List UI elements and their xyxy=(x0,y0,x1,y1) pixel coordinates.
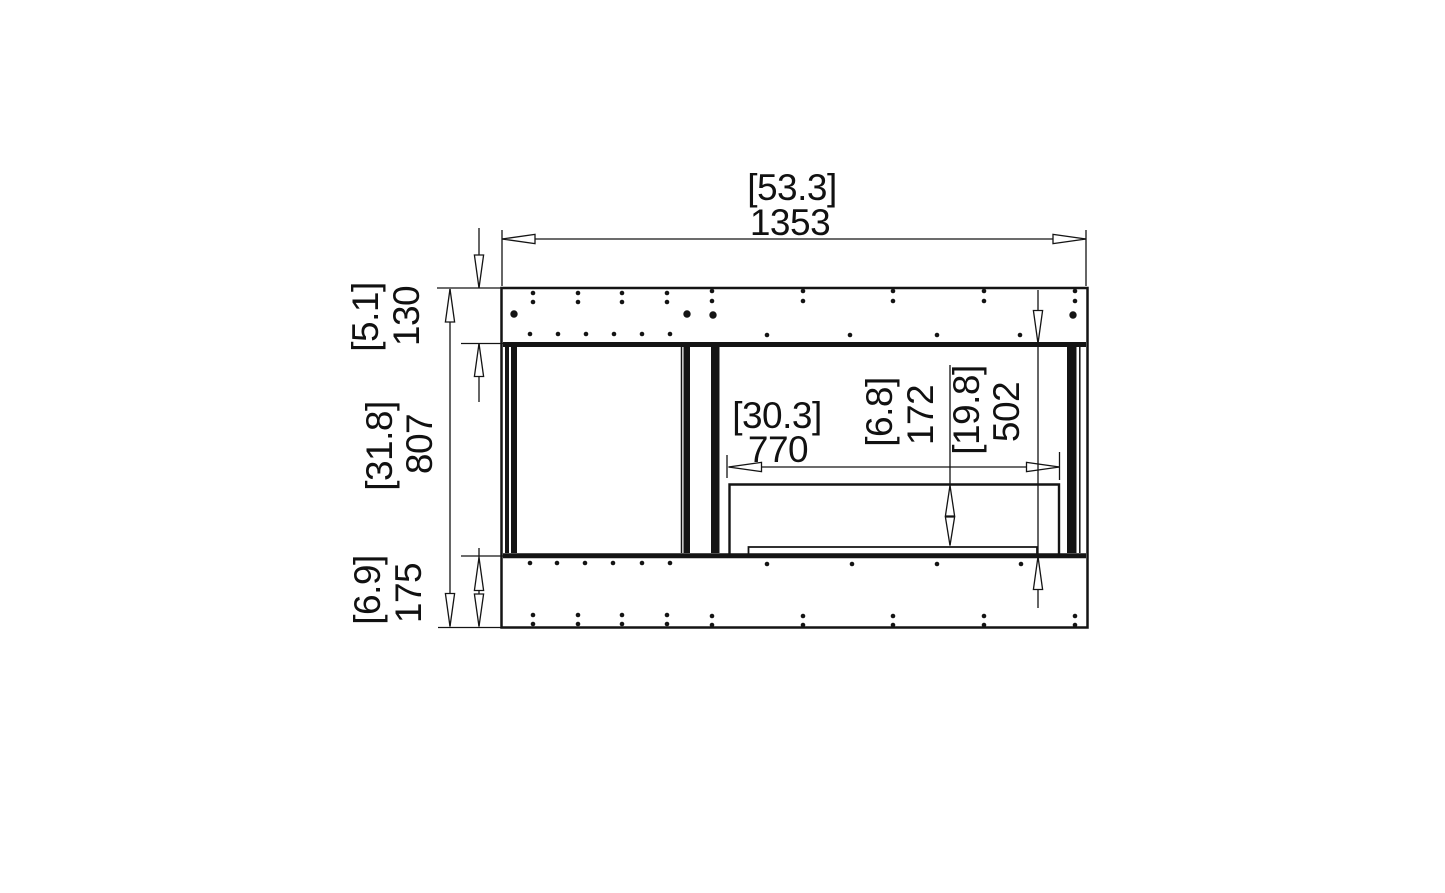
fastener-dot xyxy=(709,311,716,318)
fastener-dot xyxy=(665,291,670,296)
fastener-dot xyxy=(982,614,987,619)
fastener-dot xyxy=(528,332,533,337)
stud-left-outer xyxy=(505,347,509,553)
fastener-dot xyxy=(982,623,987,628)
fastener-dot xyxy=(640,332,645,337)
fastener-dot xyxy=(584,332,589,337)
fastener-dot xyxy=(612,332,617,337)
stud-center-left xyxy=(684,347,691,553)
fastener-dot xyxy=(1073,289,1078,294)
fastener-dot xyxy=(848,333,853,338)
fastener-dot xyxy=(576,291,581,296)
fastener-dot xyxy=(555,561,560,566)
fastener-dot xyxy=(510,310,517,317)
fastener-dot xyxy=(801,623,806,628)
fastener-dot xyxy=(1073,614,1078,619)
dim-header-height-in-label: [5.1] xyxy=(345,282,386,352)
fastener-dot xyxy=(620,613,625,618)
fastener-dot xyxy=(801,289,806,294)
fastener-dot xyxy=(683,310,690,317)
fastener-dot xyxy=(665,622,670,627)
dim-overall-width-mm-label: 1353 xyxy=(750,202,830,243)
fastener-dot xyxy=(710,623,715,628)
fastener-dot xyxy=(982,289,987,294)
dim-arrow-down-icon xyxy=(474,255,483,288)
dim-base-height: [6.9] 175 xyxy=(347,548,503,628)
fastener-dot xyxy=(710,614,715,619)
framing-diagram: [53.3] 1353 [5.1] 130 [31.8] 807 [6.9] 1… xyxy=(0,0,1445,893)
fastener-dot xyxy=(801,614,806,619)
fastener-dot xyxy=(891,614,896,619)
fastener-dot xyxy=(528,561,533,566)
dim-inner-height-mm-label: 172 xyxy=(900,385,941,445)
fastener-dot xyxy=(556,332,561,337)
fastener-dot xyxy=(765,333,770,338)
fastener-dot xyxy=(801,299,806,304)
fastener-dot xyxy=(1073,623,1078,628)
dim-base-height-mm-label: 175 xyxy=(388,563,429,623)
dim-arrow-up-icon xyxy=(445,289,454,322)
fastener-dot xyxy=(935,333,940,338)
fastener-dot xyxy=(668,561,673,566)
fastener-dot xyxy=(620,291,625,296)
dim-cavity-height-in-label: [19.8] xyxy=(946,365,987,455)
fastener-dot xyxy=(710,289,715,294)
fastener-dot xyxy=(850,562,855,567)
fastener-dot xyxy=(611,561,616,566)
fastener-dot xyxy=(935,562,940,567)
fastener-dot xyxy=(531,613,536,618)
fastener-dot xyxy=(891,289,896,294)
fastener-dot xyxy=(891,299,896,304)
fastener-dot xyxy=(710,299,715,304)
dim-header-height: [5.1] 130 xyxy=(345,228,503,402)
fastener-dot xyxy=(665,613,670,618)
dim-arrow-left-icon xyxy=(502,234,535,243)
fastener-dot xyxy=(668,332,673,337)
dim-base-height-in-label: [6.9] xyxy=(347,555,388,625)
drawing-canvas: [53.3] 1353 [5.1] 130 [31.8] 807 [6.9] 1… xyxy=(0,0,1445,893)
fastener-dot xyxy=(765,562,770,567)
fastener-dot xyxy=(640,561,645,566)
dim-arrow-down-icon xyxy=(445,594,454,627)
fastener-dot xyxy=(620,300,625,305)
fastener-dot xyxy=(982,299,987,304)
stud-center-right xyxy=(711,347,720,553)
fastener-dot xyxy=(576,613,581,618)
fastener-dot xyxy=(1073,299,1078,304)
fastener-dot xyxy=(583,561,588,566)
fastener-dot xyxy=(1019,562,1024,567)
dim-arrow-up-icon xyxy=(474,558,483,591)
dim-overall-width: [53.3] 1353 xyxy=(502,167,1086,286)
dim-opening-width-mm-label: 770 xyxy=(748,429,808,470)
fastener-dot xyxy=(1069,311,1076,318)
dim-middle-height-mm-label: 807 xyxy=(399,414,440,474)
fastener-dot xyxy=(576,300,581,305)
fastener-dot xyxy=(665,300,670,305)
fastener-dot xyxy=(891,623,896,628)
fastener-dot xyxy=(1018,333,1023,338)
fastener-dot xyxy=(620,622,625,627)
dim-inner-height-in-label: [6.8] xyxy=(859,377,900,447)
dim-arrow-up-icon xyxy=(474,344,483,377)
dim-cavity-height-mm-label: 502 xyxy=(986,382,1027,442)
fastener-dot xyxy=(531,300,536,305)
dim-arrow-down-icon xyxy=(474,594,483,627)
stud-right xyxy=(1067,347,1077,553)
dim-middle-height-in-label: [31.8] xyxy=(359,401,400,491)
fastener-dot xyxy=(576,622,581,627)
fastener-dot xyxy=(531,291,536,296)
fastener-dot xyxy=(531,622,536,627)
stud-left-inner xyxy=(511,347,517,553)
dim-header-height-mm-label: 130 xyxy=(386,286,427,346)
dim-arrow-right-icon xyxy=(1053,234,1086,243)
